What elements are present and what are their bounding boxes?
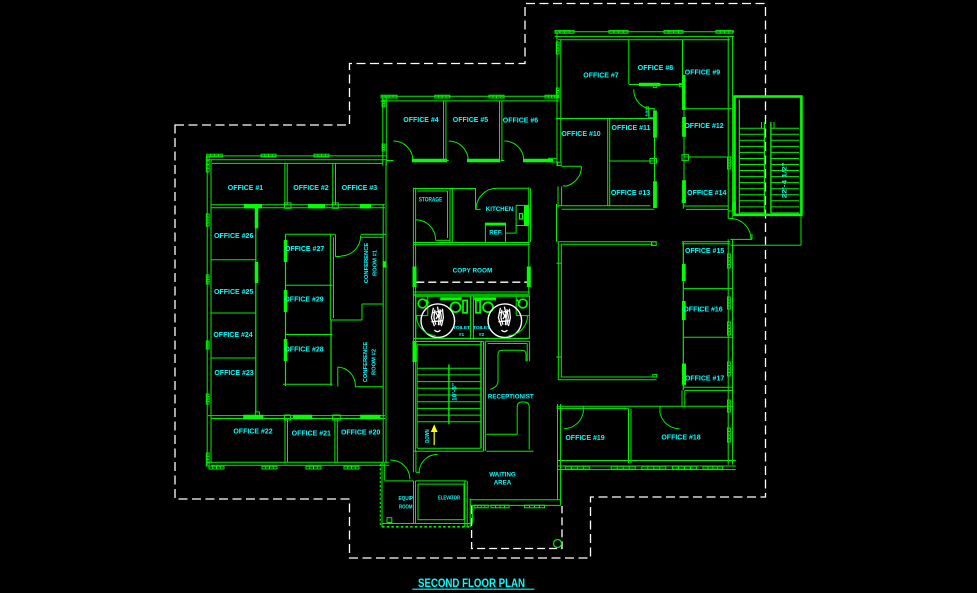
- svg-text:OFFICE #23: OFFICE #23: [214, 370, 253, 377]
- svg-text:OFFICE #4: OFFICE #4: [403, 117, 439, 124]
- svg-text:OFFICE #27: OFFICE #27: [285, 246, 324, 253]
- svg-text:ROOM: ROOM: [399, 505, 413, 511]
- svg-text:OFFICE #9: OFFICE #9: [685, 70, 721, 77]
- svg-text:CONFERENCE: CONFERENCE: [363, 342, 369, 383]
- svg-text:OFFICE #13: OFFICE #13: [611, 190, 650, 197]
- svg-text:OFFICE #2: OFFICE #2: [293, 185, 329, 192]
- svg-text:OFFICE #10: OFFICE #10: [561, 131, 600, 138]
- svg-text:STORAGE: STORAGE: [419, 197, 443, 204]
- svg-text:ROOM #2: ROOM #2: [372, 349, 378, 375]
- svg-text:OFFICE #1: OFFICE #1: [228, 185, 264, 192]
- svg-text:OFFICE #7: OFFICE #7: [583, 73, 619, 80]
- svg-text:EQUIP: EQUIP: [399, 496, 414, 502]
- svg-text:RECEPTIONIST: RECEPTIONIST: [488, 393, 534, 400]
- svg-text:#1: #1: [459, 332, 465, 338]
- svg-text:SECOND FLOOR PLAN: SECOND FLOOR PLAN: [418, 576, 525, 590]
- svg-text:OFFICE #8: OFFICE #8: [638, 65, 674, 72]
- svg-text:OFFICE #11: OFFICE #11: [612, 125, 651, 132]
- svg-text:TOILET: TOILET: [473, 325, 490, 331]
- svg-text:ELEVATOR: ELEVATOR: [438, 496, 460, 502]
- svg-text:KITCHEN: KITCHEN: [486, 206, 514, 213]
- svg-text:OFFICE #19: OFFICE #19: [565, 435, 604, 442]
- svg-text:WAITING: WAITING: [489, 472, 516, 479]
- svg-text:22'-4 1/2": 22'-4 1/2": [782, 162, 789, 198]
- svg-text:OFFICE #14: OFFICE #14: [687, 190, 726, 197]
- svg-text:OFFICE #17: OFFICE #17: [685, 376, 724, 383]
- svg-text:OFFICE #6: OFFICE #6: [503, 118, 539, 125]
- svg-text:10'-5": 10'-5": [453, 383, 459, 401]
- svg-text:OFFICE #21: OFFICE #21: [292, 430, 331, 437]
- svg-text:REF.: REF.: [489, 230, 503, 237]
- svg-text:OFFICE #18: OFFICE #18: [661, 435, 700, 442]
- svg-text:OFFICE #29: OFFICE #29: [284, 297, 323, 304]
- svg-text:CONFERENCE: CONFERENCE: [364, 243, 370, 284]
- svg-text:OFFICE #3: OFFICE #3: [342, 185, 378, 192]
- svg-text:TOILET: TOILET: [453, 325, 470, 331]
- svg-text:OFFICE #24: OFFICE #24: [213, 332, 252, 339]
- svg-text:OFFICE #26: OFFICE #26: [214, 233, 253, 240]
- svg-text:OFFICE #5: OFFICE #5: [453, 117, 489, 124]
- svg-text:OFFICE #22: OFFICE #22: [233, 429, 272, 436]
- svg-text:OFFICE #15: OFFICE #15: [685, 248, 724, 255]
- svg-text:OFFICE #12: OFFICE #12: [684, 123, 723, 130]
- svg-text:#2: #2: [479, 332, 485, 338]
- svg-text:OFFICE #16: OFFICE #16: [683, 307, 722, 314]
- svg-text:ROOM #1: ROOM #1: [373, 249, 379, 276]
- svg-text:DOWN: DOWN: [425, 429, 431, 443]
- svg-text:OFFICE #28: OFFICE #28: [284, 347, 323, 354]
- svg-text:OFFICE #25: OFFICE #25: [214, 289, 253, 296]
- svg-text:OFFICE #20: OFFICE #20: [341, 430, 380, 437]
- svg-text:COPY ROOM: COPY ROOM: [453, 268, 493, 275]
- svg-text:AREA: AREA: [494, 480, 512, 487]
